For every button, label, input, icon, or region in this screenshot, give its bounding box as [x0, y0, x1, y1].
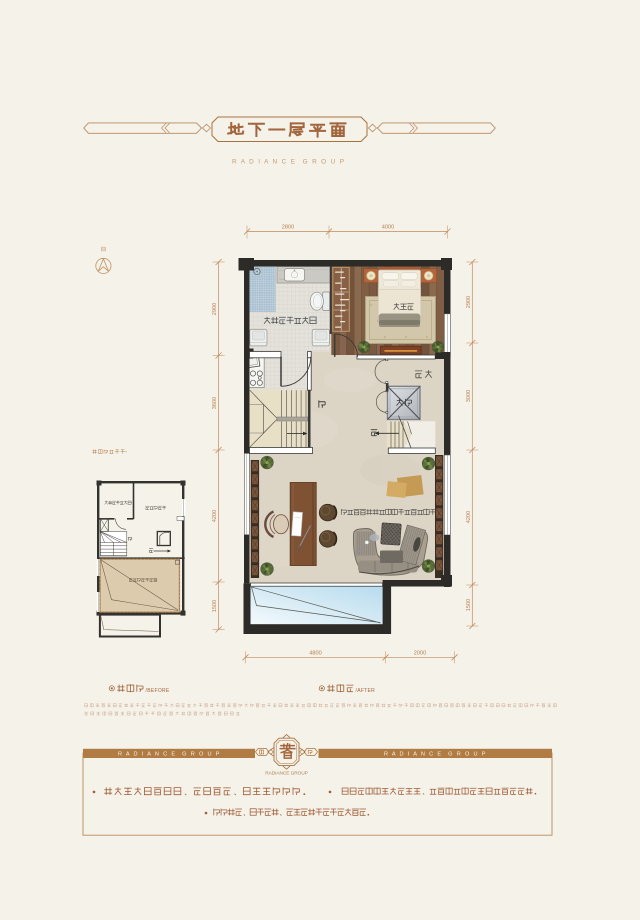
- svg-text:2900: 2900: [212, 303, 218, 315]
- svg-text:2800: 2800: [282, 225, 294, 231]
- svg-text:RADIANCE GROUP: RADIANCE GROUP: [265, 771, 308, 777]
- svg-text:4200: 4200: [466, 511, 472, 523]
- svg-text:2000: 2000: [414, 650, 426, 656]
- svg-text:1500: 1500: [212, 600, 218, 612]
- svg-text:4200: 4200: [212, 510, 218, 522]
- svg-text:3000: 3000: [466, 390, 472, 402]
- svg-text:4800: 4800: [309, 650, 321, 656]
- svg-text:4000: 4000: [382, 225, 394, 231]
- svg-text:R A D I A N C E G R O U P: R A D I A N C E G R O U P: [232, 159, 345, 166]
- svg-text:R A D I A N C E G R O U P: R A D I A N C E G R O U P: [118, 752, 220, 758]
- svg-text:/BEFORE: /BEFORE: [146, 688, 170, 694]
- svg-text:1500: 1500: [466, 599, 472, 611]
- svg-text:2900: 2900: [466, 296, 472, 308]
- svg-text:3600: 3600: [212, 397, 218, 409]
- svg-text:R A D I A N C E G R O U P: R A D I A N C E G R O U P: [384, 752, 486, 758]
- svg-text:/AFTER: /AFTER: [356, 688, 376, 694]
